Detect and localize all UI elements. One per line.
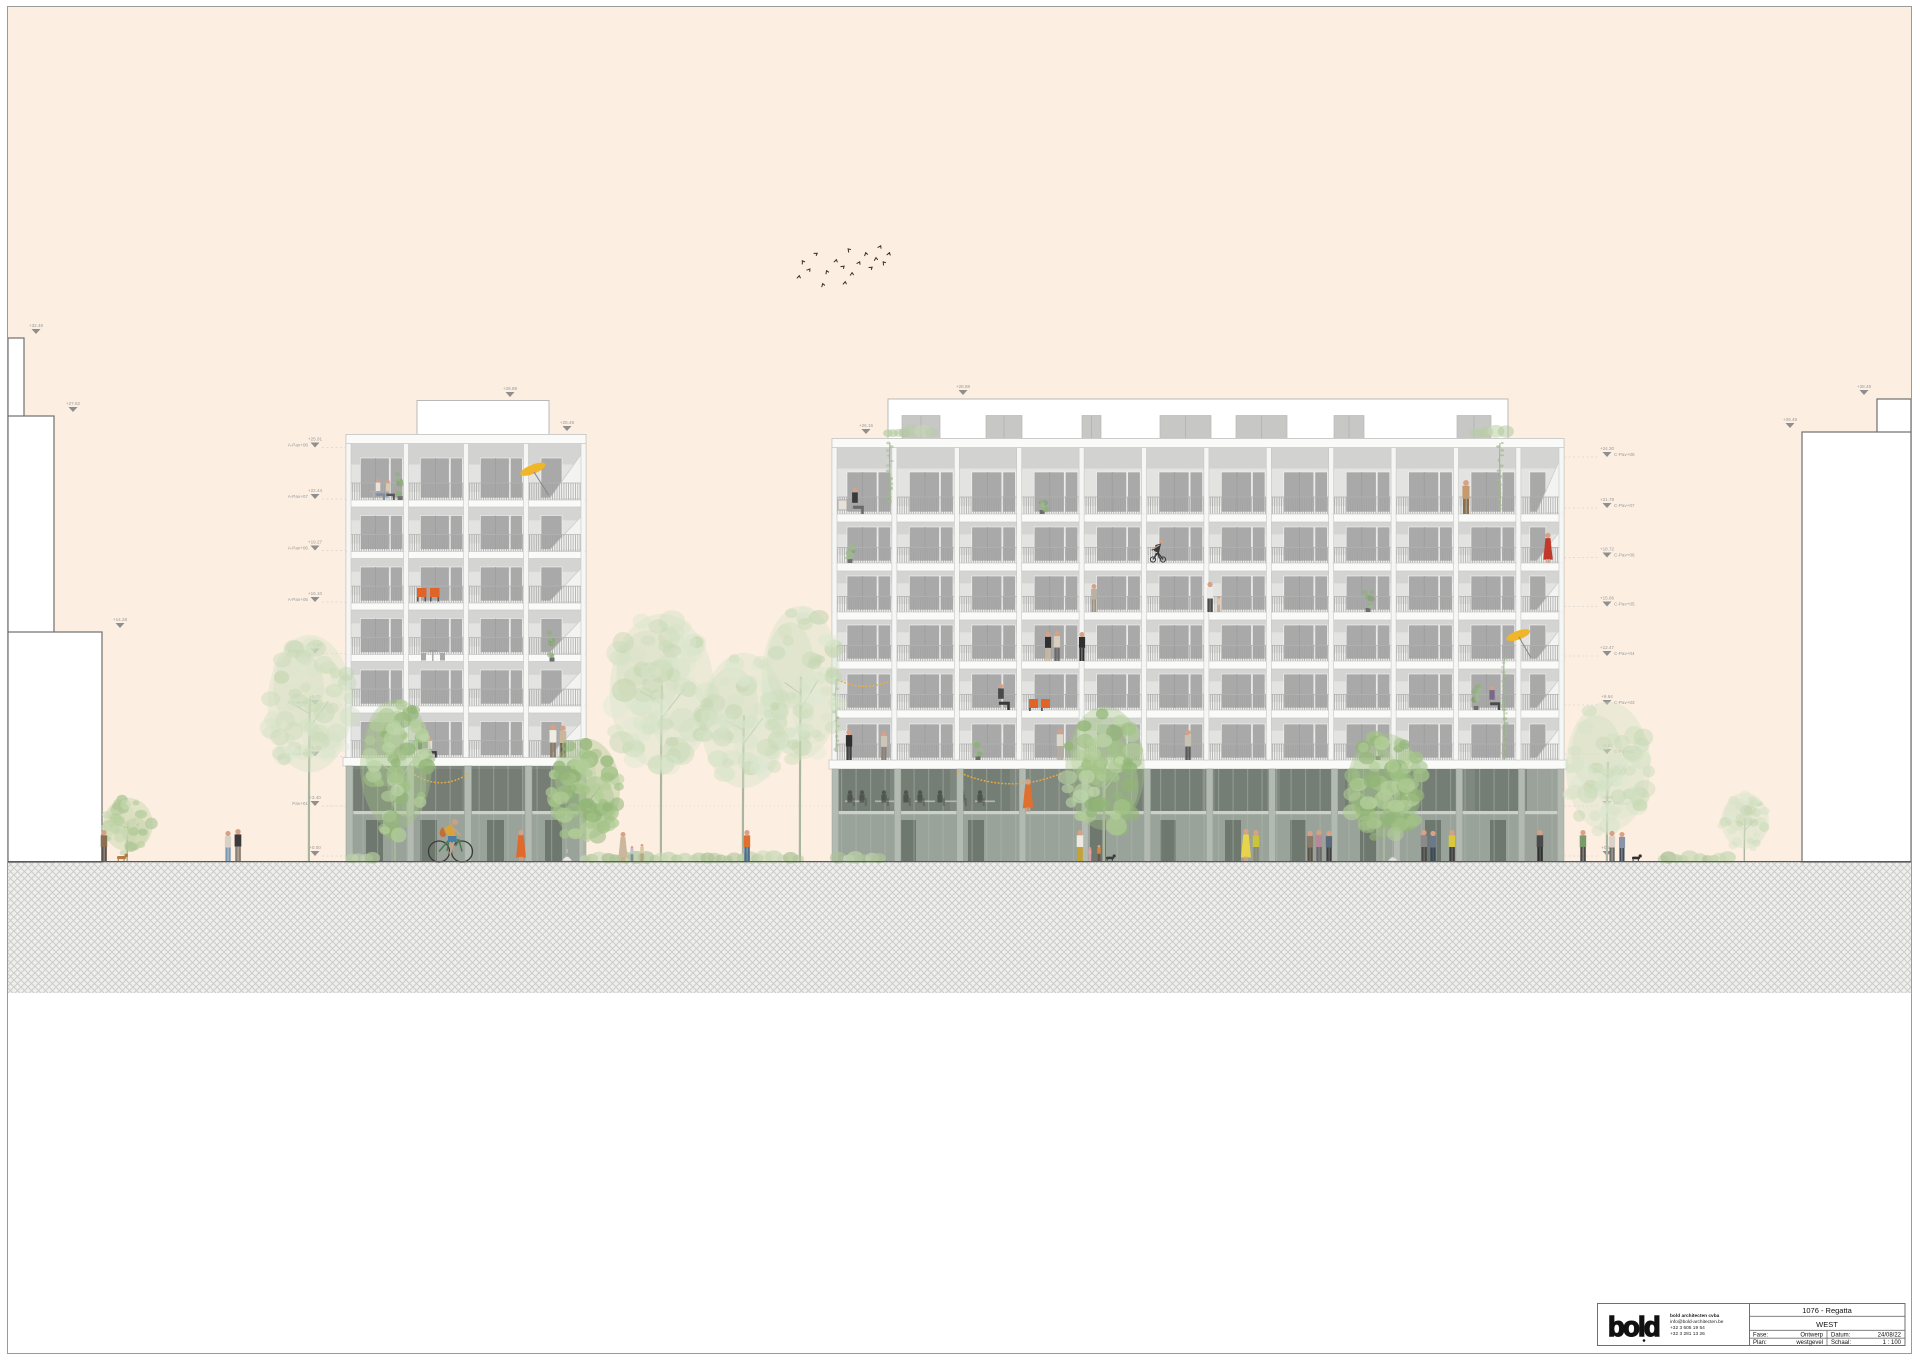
svg-text:+19.27: +19.27: [308, 540, 323, 545]
svg-text:+22.44: +22.44: [308, 488, 323, 493]
svg-text:Pav+01: Pav+01: [292, 801, 308, 806]
svg-text:+15.66: +15.66: [1600, 596, 1615, 601]
svg-text:+28.49: +28.49: [1857, 384, 1872, 389]
svg-text:WEST: WEST: [1816, 1320, 1838, 1329]
svg-text:+21.78: +21.78: [1600, 497, 1615, 502]
svg-text:+28.88: +28.88: [956, 384, 971, 389]
svg-text:+26.49: +26.49: [1783, 417, 1798, 422]
svg-text:+32 3 605 19 54: +32 3 605 19 54: [1670, 1325, 1705, 1331]
svg-text:A-Pav+05: A-Pav+05: [288, 597, 309, 602]
svg-text:+3.40: +3.40: [309, 795, 321, 800]
svg-text:westgevel: westgevel: [1795, 1340, 1823, 1346]
svg-text:C-Pav+05: C-Pav+05: [1614, 602, 1635, 607]
svg-text:+24.30: +24.30: [1600, 446, 1615, 451]
svg-text:C-Pav+07: C-Pav+07: [1614, 503, 1635, 508]
svg-text:C-Pav+06: C-Pav+06: [1614, 553, 1635, 558]
svg-text:Datum:: Datum:: [1831, 1333, 1851, 1339]
svg-text:24/08/22: 24/08/22: [1878, 1333, 1902, 1339]
svg-text:+26.15: +26.15: [859, 423, 874, 428]
svg-text:A-Pav+08: A-Pav+08: [288, 443, 309, 448]
svg-text:A-Pav+07: A-Pav+07: [288, 494, 309, 499]
svg-text:1 : 100: 1 : 100: [1883, 1340, 1902, 1346]
svg-text:+14.28: +14.28: [113, 617, 128, 622]
svg-text:Schaal:: Schaal:: [1831, 1340, 1851, 1346]
svg-text:C-Pav+04: C-Pav+04: [1614, 651, 1635, 656]
svg-text:Fase:: Fase:: [1753, 1333, 1768, 1339]
svg-text:+18.72: +18.72: [1600, 547, 1615, 552]
svg-text:A-Pav+06: A-Pav+06: [288, 546, 309, 551]
svg-text:+12.47: +12.47: [1600, 645, 1615, 650]
svg-text:+25.91: +25.91: [308, 437, 323, 442]
svg-text:C-Pav+08: C-Pav+08: [1614, 452, 1635, 457]
svg-text:Plan:: Plan:: [1753, 1340, 1767, 1346]
svg-text:Ontwerp: Ontwerp: [1800, 1333, 1823, 1339]
svg-text:+9.64: +9.64: [1601, 694, 1613, 699]
svg-text:bold architecten cvba: bold architecten cvba: [1670, 1313, 1720, 1319]
svg-text:bold: bold: [1608, 1311, 1659, 1342]
svg-text:info@bold-architecten.be: info@bold-architecten.be: [1670, 1319, 1724, 1325]
svg-text:+26.49: +26.49: [560, 420, 575, 425]
svg-text:+27.62: +27.62: [66, 401, 81, 406]
svg-text:1076 - Regatta: 1076 - Regatta: [1802, 1306, 1852, 1315]
svg-text:+32.48: +32.48: [29, 323, 44, 328]
svg-text:+32 3 281 13 26: +32 3 281 13 26: [1670, 1331, 1705, 1337]
svg-text:+28.88: +28.88: [503, 386, 518, 391]
svg-text:+16.10: +16.10: [308, 591, 323, 596]
svg-text:+0.00: +0.00: [309, 845, 321, 850]
